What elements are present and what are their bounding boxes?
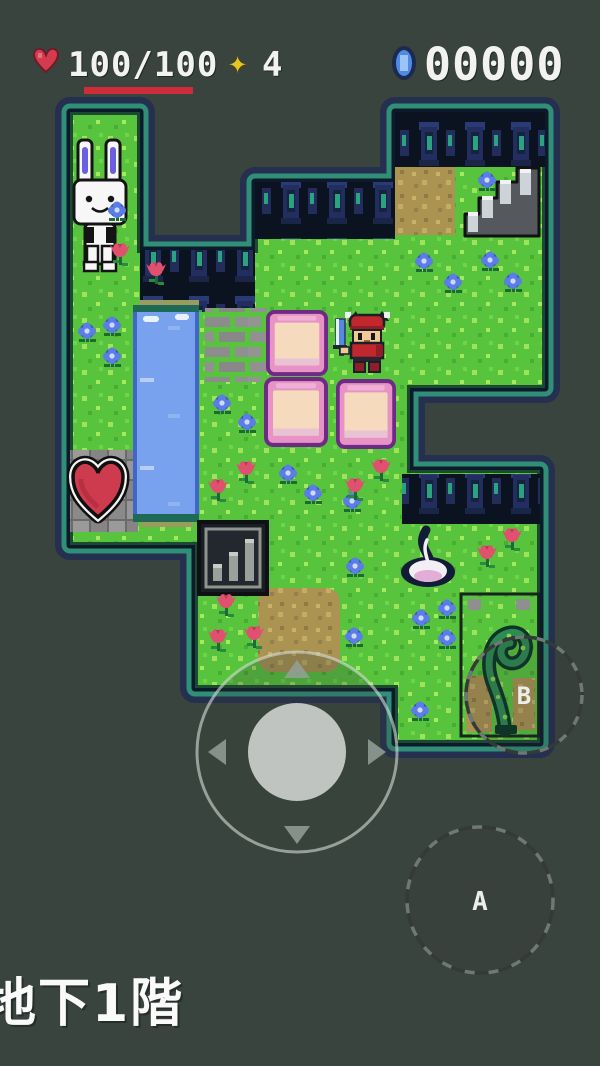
water-channel bbox=[133, 312, 199, 522]
button-b[interactable]: B bbox=[466, 637, 582, 753]
pink-block bbox=[266, 379, 326, 445]
stone-wall-middle bbox=[255, 182, 395, 239]
virtual-joystick[interactable] bbox=[197, 652, 397, 852]
star-icon: ✦ bbox=[228, 46, 247, 78]
coin-counter: 00000 bbox=[424, 42, 564, 87]
stone-wall-lower bbox=[402, 474, 540, 524]
pink-block bbox=[268, 312, 326, 374]
hp-counter: 100/100 bbox=[68, 48, 218, 82]
grate-sign bbox=[199, 522, 267, 594]
gem-icon bbox=[390, 44, 418, 82]
star-counter: 4 bbox=[262, 48, 282, 82]
hud: 100/100 ✦ 4 00000 bbox=[0, 0, 600, 100]
button-a[interactable]: A bbox=[407, 827, 553, 973]
heart-container bbox=[73, 462, 123, 517]
heart-icon bbox=[32, 46, 60, 76]
game-screen: B A 100/100 ✦ 4 00000 地下1階 bbox=[0, 0, 600, 1066]
hp-bar bbox=[84, 87, 193, 94]
dungeon-map bbox=[64, 112, 545, 743]
stone-wall-top-right bbox=[395, 112, 545, 167]
pink-block bbox=[338, 381, 394, 447]
floor-label: 地下1階 bbox=[0, 976, 184, 1033]
game-map: B A bbox=[0, 0, 600, 1066]
dirt-patch bbox=[395, 167, 455, 235]
button-b-label: B bbox=[517, 682, 531, 710]
brick-path bbox=[205, 308, 267, 382]
joystick-knob[interactable] bbox=[248, 703, 346, 801]
button-a-label: A bbox=[472, 887, 488, 917]
